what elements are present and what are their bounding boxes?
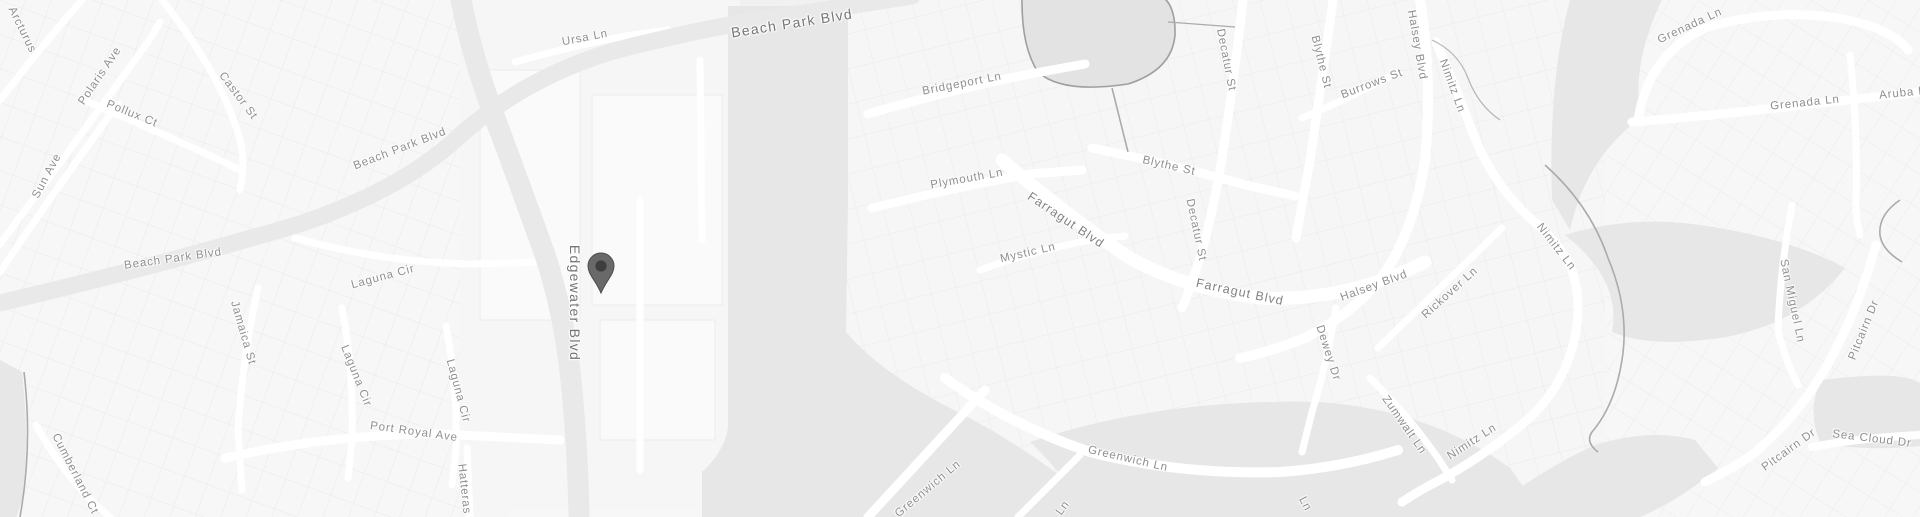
street-label: Ursa Ln bbox=[561, 28, 609, 49]
street-label: Beach Park Blvd bbox=[352, 126, 448, 173]
street-label: Halsey Blvd bbox=[1339, 268, 1409, 303]
street-label: Nimitz Ln bbox=[1445, 422, 1499, 463]
street-label: Aruba Ln bbox=[1879, 84, 1920, 102]
street-label: Cumberland Ct bbox=[49, 432, 100, 517]
street-label: Jamaica St bbox=[228, 300, 258, 367]
street-label: Beach Park Blvd bbox=[123, 246, 222, 272]
street-label: Laguna Cir bbox=[444, 358, 472, 424]
street-label: Bridgeport Ln bbox=[921, 70, 1003, 97]
street-label: Grenada Ln bbox=[1770, 93, 1841, 112]
street-label: Greenwich Ln bbox=[893, 458, 963, 517]
street-label: Blythe St bbox=[1309, 34, 1334, 89]
street-label: Pitcairn Dr bbox=[1847, 298, 1882, 361]
street-label: Nimitz Ln bbox=[1534, 221, 1578, 273]
street-label: Arcturus bbox=[6, 5, 39, 55]
street-label: Castor St bbox=[216, 70, 259, 122]
pin-core bbox=[595, 260, 606, 271]
street-label: Blythe St bbox=[1141, 154, 1196, 178]
street-label: Nimitz Ln bbox=[1437, 58, 1467, 115]
street-label: Zumwalt Ln bbox=[1379, 394, 1428, 457]
street-label: Edgewater Blvd bbox=[567, 245, 583, 361]
street-label: Pollux Ct bbox=[105, 98, 160, 129]
street-label: Rickover Ln bbox=[1420, 265, 1481, 321]
street-label: Plymouth Ln bbox=[930, 167, 1005, 192]
street-label: Halsey Blvd bbox=[1405, 9, 1429, 81]
street-label: Laguna Cir bbox=[338, 343, 374, 408]
street-label: Greenwich Ln bbox=[1087, 444, 1169, 474]
street-label: Port Royal Ave bbox=[369, 420, 458, 444]
pin-body bbox=[588, 253, 614, 293]
map-pin[interactable] bbox=[586, 237, 616, 297]
street-label: Sea Cloud Dr bbox=[1832, 428, 1913, 450]
street-label: Decatur St bbox=[1214, 28, 1238, 92]
street-label: Sun Ave bbox=[30, 152, 64, 201]
street-label: Farragut Blvd bbox=[1195, 276, 1285, 308]
map-viewport[interactable]: ArcturusPolaris AvePollux CtCastor StSun… bbox=[0, 0, 1920, 517]
street-label: Laguna Cir bbox=[350, 263, 416, 291]
street-label: Burrows St bbox=[1339, 67, 1404, 102]
street-label: Mystic Ln bbox=[999, 241, 1057, 265]
street-label: San Miguel Ln bbox=[1777, 258, 1806, 344]
street-labels: ArcturusPolaris AvePollux CtCastor StSun… bbox=[0, 0, 1920, 517]
street-label: Ln bbox=[1054, 499, 1072, 517]
street-label: Dewey Dr bbox=[1313, 324, 1342, 383]
street-label: Polaris Ave bbox=[76, 45, 124, 107]
street-label: Hatteras bbox=[455, 463, 472, 515]
street-label: Decatur St bbox=[1184, 198, 1209, 262]
street-label: Beach Park Blvd bbox=[730, 5, 854, 40]
street-label: Ln bbox=[1296, 495, 1313, 514]
street-label: Grenada Ln bbox=[1656, 6, 1724, 46]
street-label: Pitcairn Dr bbox=[1760, 426, 1818, 473]
street-label: Farragut Blvd bbox=[1025, 189, 1107, 251]
